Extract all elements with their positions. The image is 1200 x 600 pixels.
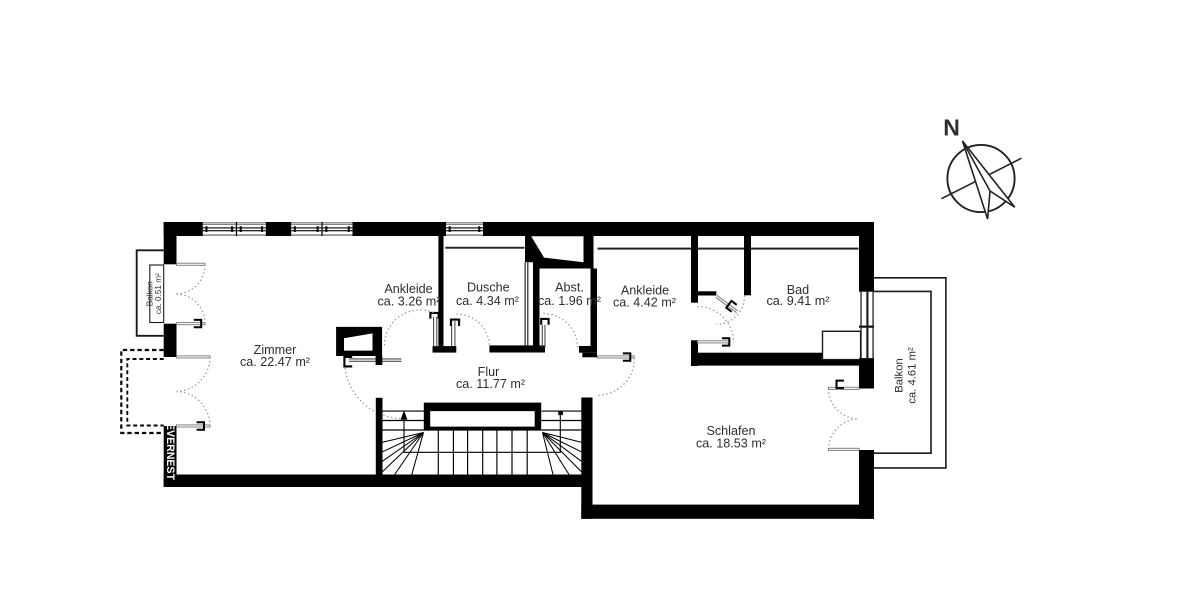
svg-text:ca. 22.47 m²: ca. 22.47 m² xyxy=(240,355,310,369)
svg-text:ca. 0.51 m²: ca. 0.51 m² xyxy=(154,273,163,314)
svg-text:ca. 1.96 m²: ca. 1.96 m² xyxy=(538,294,601,308)
svg-text:N: N xyxy=(943,114,960,140)
svg-text:Dusche: Dusche xyxy=(467,281,510,295)
svg-text:ca. 9.41 m²: ca. 9.41 m² xyxy=(767,294,830,308)
svg-text:EVERNEST: EVERNEST xyxy=(164,423,176,481)
svg-text:ca. 4.34 m²: ca. 4.34 m² xyxy=(456,294,519,308)
svg-text:ca. 11.77 m²: ca. 11.77 m² xyxy=(456,377,525,391)
svg-text:ca. 4.42 m²: ca. 4.42 m² xyxy=(613,296,676,310)
svg-text:ca. 18.53 m²: ca. 18.53 m² xyxy=(696,437,766,451)
svg-text:Balkon: Balkon xyxy=(894,358,906,393)
svg-text:ca. 4.61 m²: ca. 4.61 m² xyxy=(907,347,919,404)
svg-text:Abst.: Abst. xyxy=(555,281,584,295)
svg-text:ca. 3.26 m²: ca. 3.26 m² xyxy=(378,295,441,309)
